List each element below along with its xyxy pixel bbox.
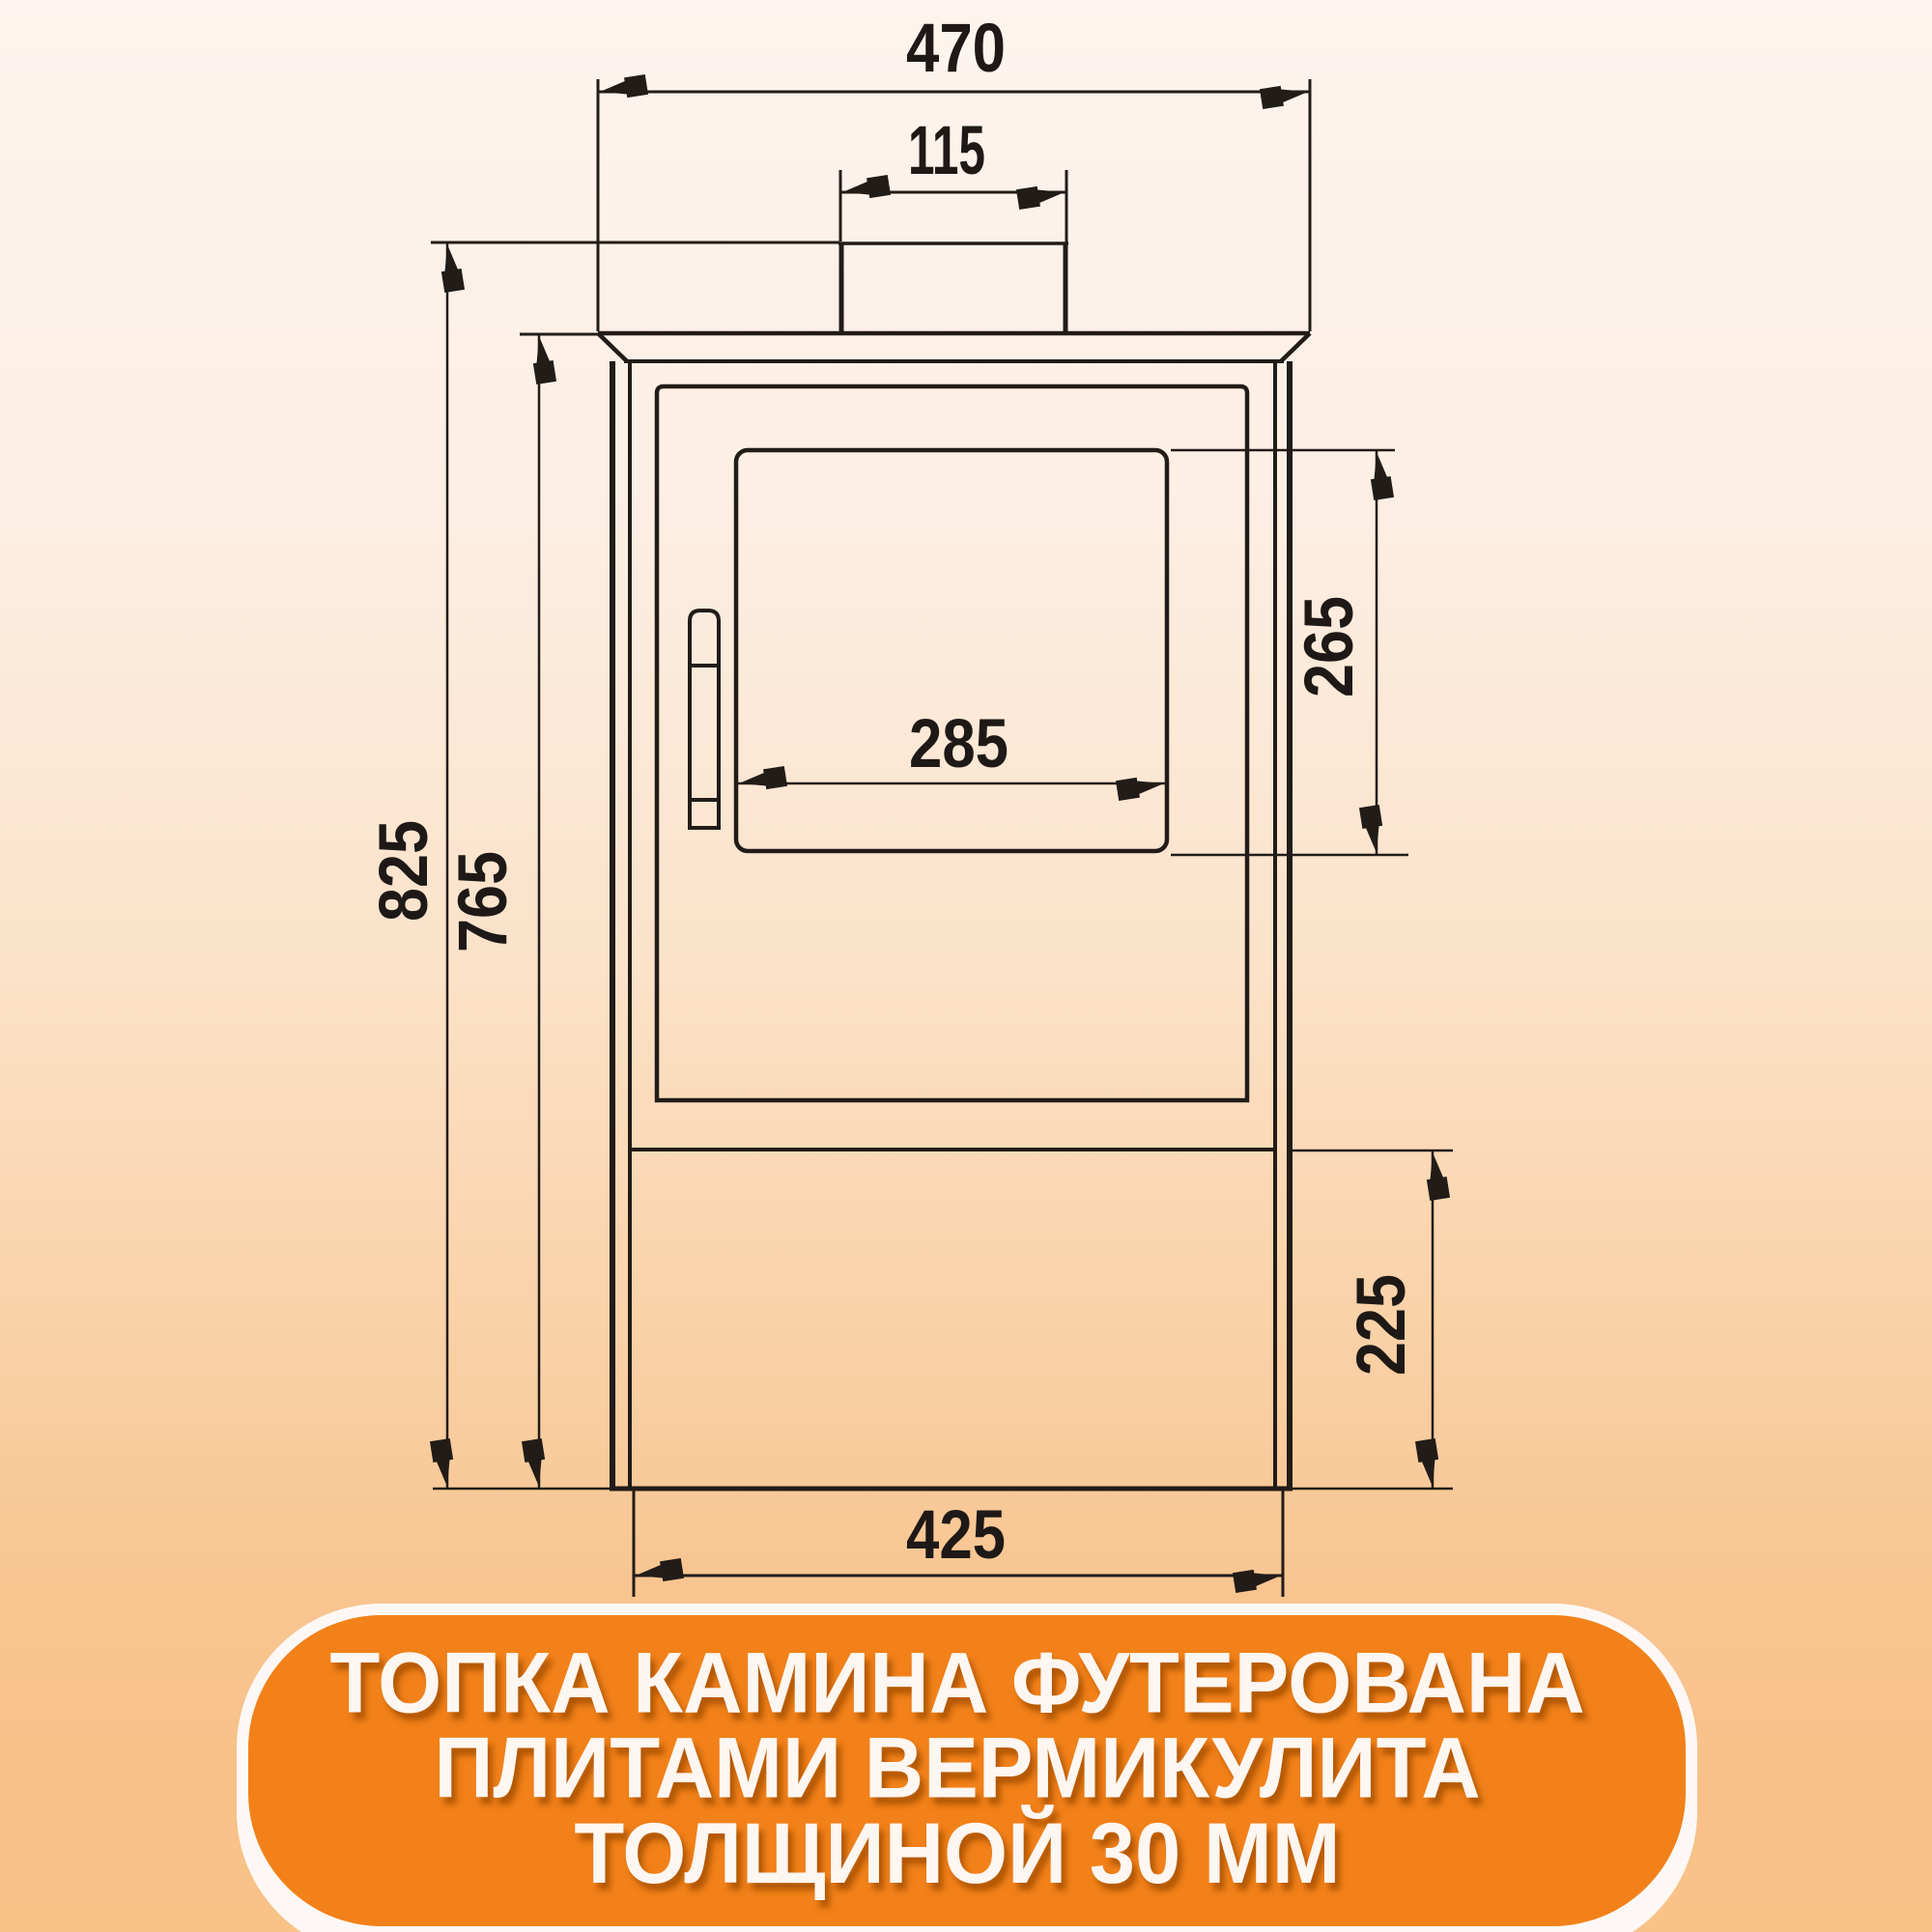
svg-text:225: 225 bbox=[1344, 1274, 1420, 1376]
svg-text:425: 425 bbox=[906, 1497, 1006, 1574]
svg-text:285: 285 bbox=[909, 706, 1009, 782]
svg-text:470: 470 bbox=[906, 11, 1006, 87]
svg-text:765: 765 bbox=[445, 851, 522, 952]
svg-text:825: 825 bbox=[366, 820, 442, 922]
svg-text:265: 265 bbox=[1292, 596, 1368, 697]
svg-text:115: 115 bbox=[908, 113, 985, 189]
